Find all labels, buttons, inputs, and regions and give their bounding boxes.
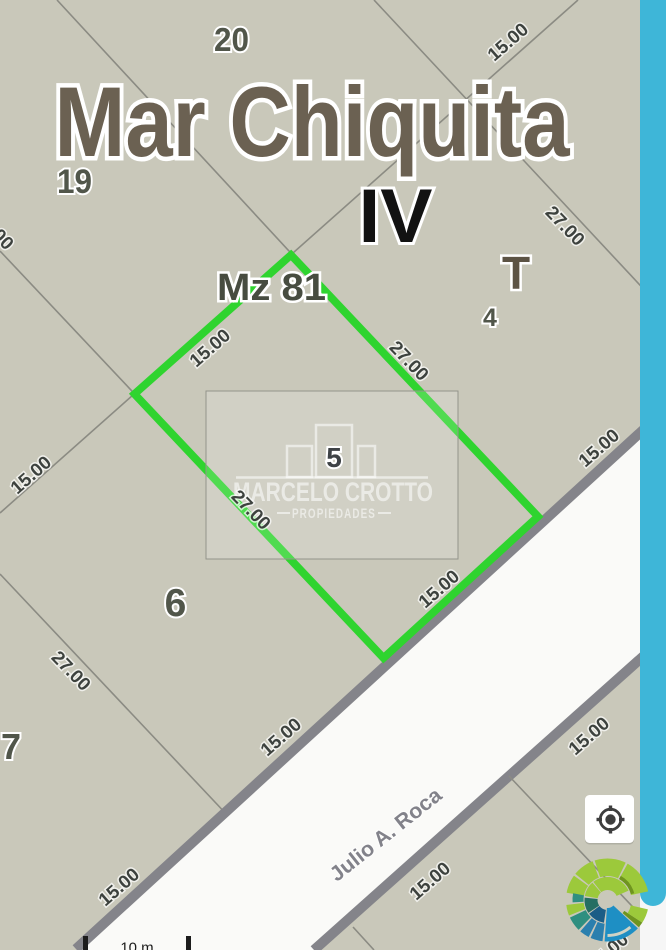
svg-text:IV: IV xyxy=(359,174,433,259)
svg-text:4: 4 xyxy=(483,304,497,332)
svg-text:6: 6 xyxy=(165,582,187,625)
svg-text:Mar Chiquita: Mar Chiquita xyxy=(55,66,571,177)
svg-text:20: 20 xyxy=(214,21,249,58)
svg-text:T: T xyxy=(502,247,530,299)
svg-text:10 m: 10 m xyxy=(120,940,153,950)
svg-text:19: 19 xyxy=(57,163,92,201)
svg-text:Mz 81: Mz 81 xyxy=(217,267,326,309)
svg-text:MARCELO CROTTO: MARCELO CROTTO xyxy=(233,477,433,507)
svg-text:7: 7 xyxy=(1,726,21,767)
svg-text:PROPIEDADES: PROPIEDADES xyxy=(292,506,376,521)
svg-text:5: 5 xyxy=(326,442,342,473)
